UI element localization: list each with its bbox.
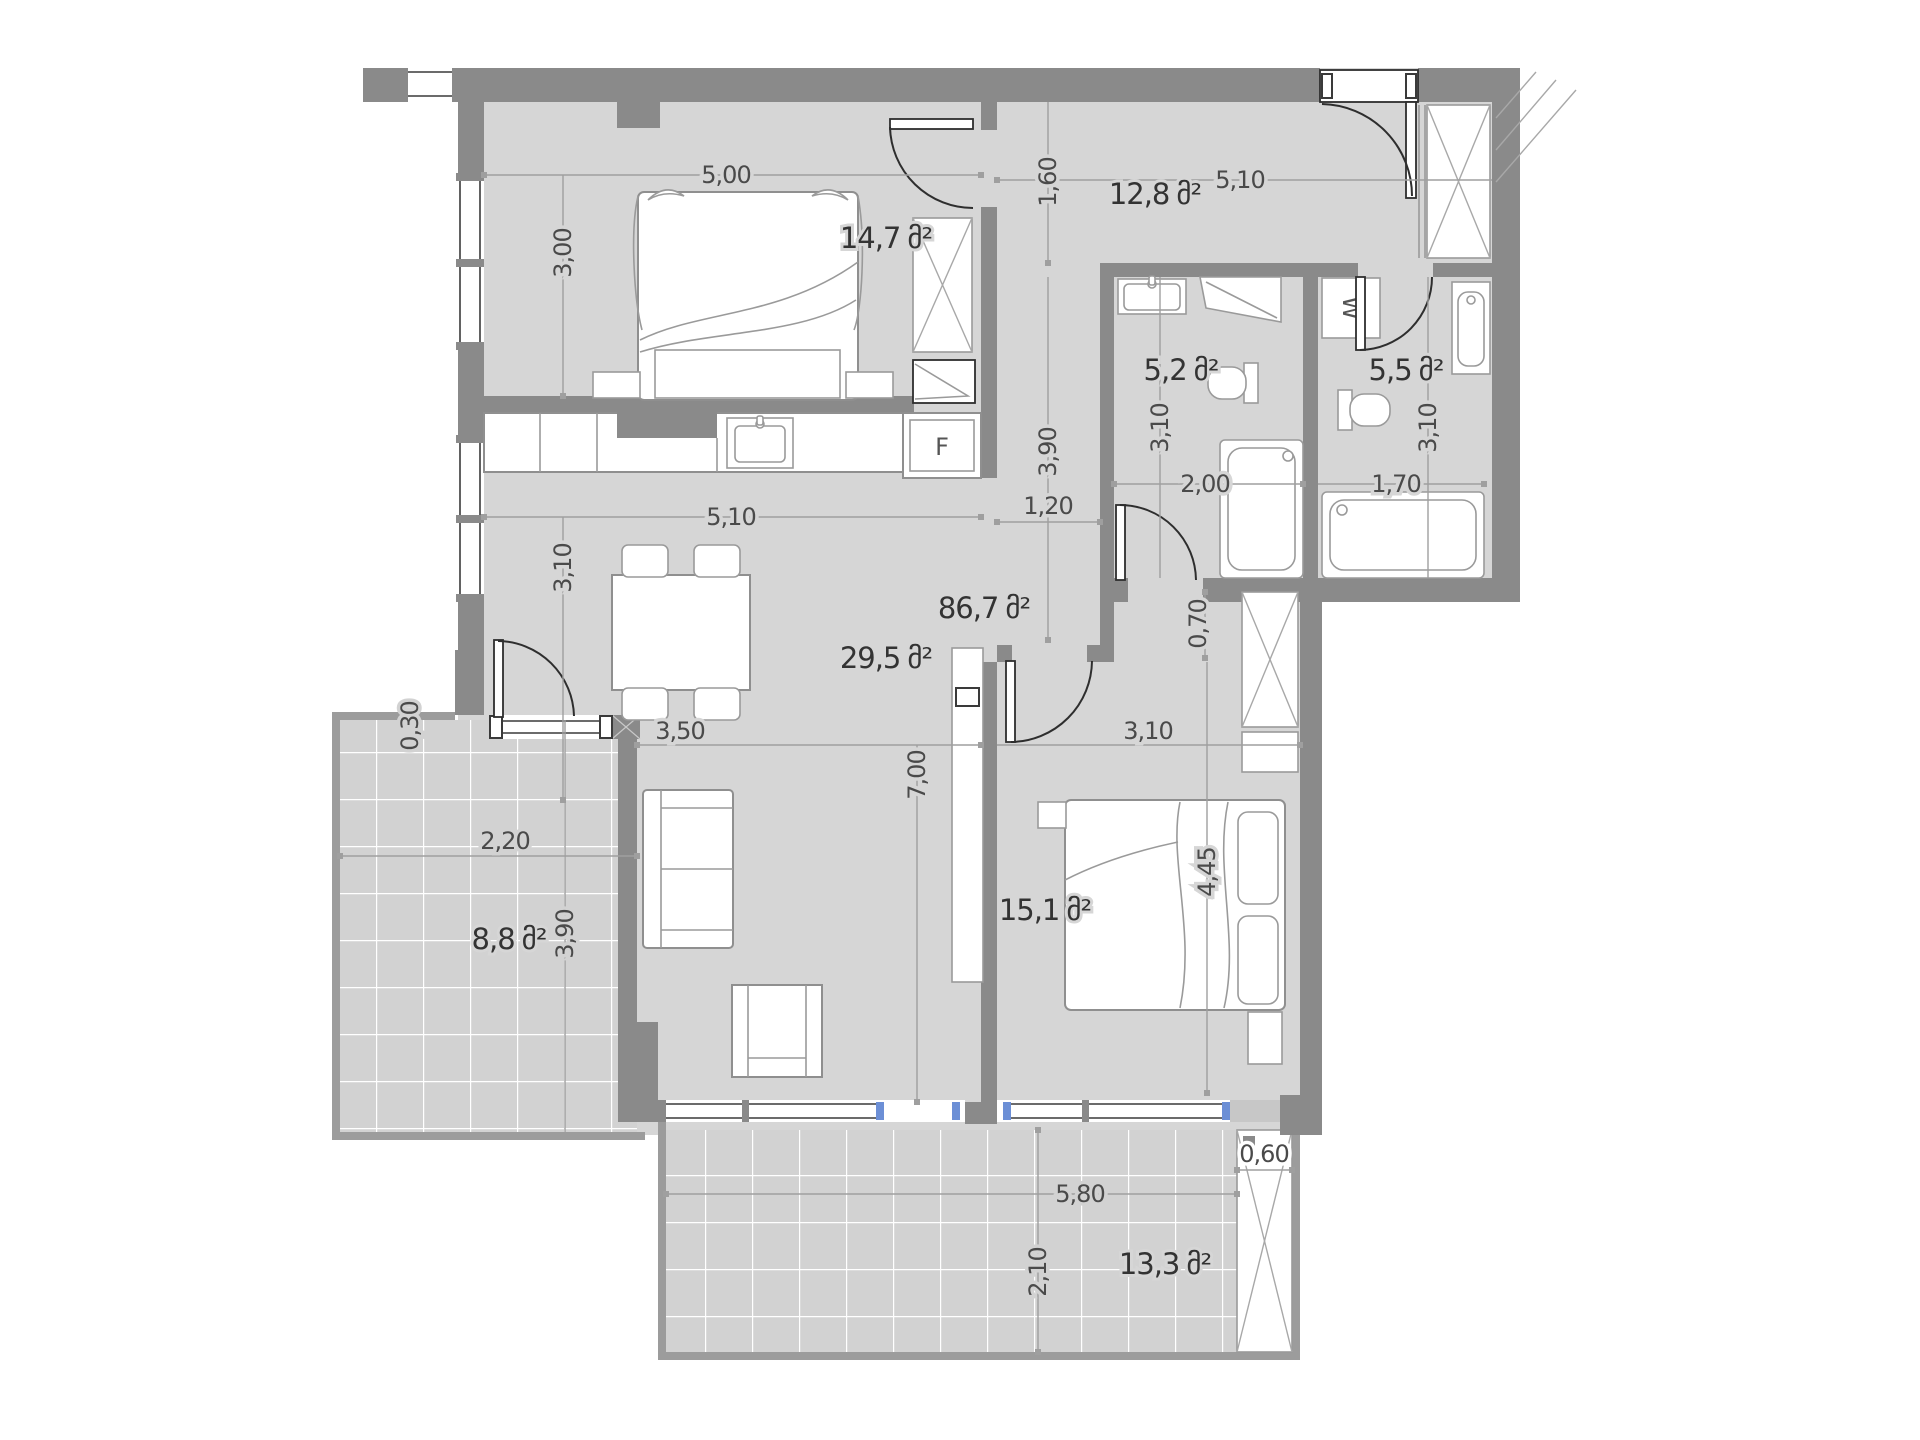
- svg-text:1,60: 1,60: [1034, 157, 1062, 206]
- tv-unit: [952, 648, 983, 982]
- balcony-bottom-tiles: [666, 1130, 1237, 1352]
- svg-text:3,10: 3,10: [549, 543, 577, 592]
- chair: [622, 688, 668, 720]
- bed-bedroom2: [1065, 800, 1285, 1010]
- svg-text:0,60: 0,60: [1239, 1140, 1288, 1168]
- window-living-left: [456, 435, 484, 602]
- window-band-bedroom2-south: [997, 1100, 1280, 1122]
- area-label-balcony-left: 8,8მ²: [472, 922, 547, 956]
- sink-bathroom1: [1118, 276, 1186, 314]
- svg-text:5,80: 5,80: [1055, 1180, 1104, 1208]
- svg-text:3,10: 3,10: [1414, 403, 1442, 452]
- bathtub-bathroom1: [1220, 440, 1303, 578]
- area-label-bathroom2: 5,5მ²: [1369, 353, 1444, 387]
- nightstand-bedroom2-left: [1038, 802, 1066, 828]
- svg-text:2,20: 2,20: [480, 827, 529, 855]
- toilet-bathroom2: [1338, 390, 1390, 430]
- svg-text:1,70: 1,70: [1371, 470, 1420, 498]
- nightstand-right: [846, 372, 893, 398]
- area-label-total: 86,7მ²: [938, 591, 1030, 625]
- balcony-bottom: [658, 1122, 1300, 1360]
- svg-text:3,50: 3,50: [655, 717, 704, 745]
- window-top-left-gap: [408, 64, 452, 104]
- area-label-bedroom1: 14,7მ²: [840, 221, 932, 255]
- sink-bathroom2: [1452, 282, 1490, 374]
- svg-text:5,10: 5,10: [706, 503, 755, 531]
- washer: W: [1322, 278, 1380, 338]
- svg-text:5,00: 5,00: [701, 161, 750, 189]
- wardrobe-bedroom2: [1242, 592, 1298, 727]
- nightstand-bedroom2-top: [1242, 732, 1298, 772]
- nightstand-left: [593, 372, 640, 398]
- balcony-door-sidelight: [490, 715, 612, 739]
- svg-text:2,00: 2,00: [1180, 470, 1229, 498]
- bed-bedroom1: [634, 190, 863, 400]
- svg-text:2,10: 2,10: [1024, 1247, 1052, 1296]
- svg-text:1,20: 1,20: [1023, 492, 1072, 520]
- svg-text:3,10: 3,10: [1123, 717, 1172, 745]
- fridge-label: F: [935, 433, 949, 461]
- chair: [622, 545, 668, 577]
- cabinet-bedroom1: [913, 360, 975, 403]
- chair: [694, 688, 740, 720]
- chair: [694, 545, 740, 577]
- svg-text:3,90: 3,90: [551, 909, 579, 958]
- svg-text:4,45: 4,45: [1193, 847, 1221, 896]
- fridge: F: [903, 413, 981, 478]
- dim-balcony-left-edge: 0,30: [396, 701, 424, 750]
- area-label-bedroom2: 15,1მ²: [999, 893, 1091, 927]
- bench-bedroom2: [1248, 1012, 1282, 1064]
- window-bedroom1-left: [456, 173, 484, 350]
- bathtub-bathroom2: [1322, 492, 1484, 578]
- svg-text:5,10: 5,10: [1215, 166, 1264, 194]
- svg-text:7,00: 7,00: [903, 750, 931, 799]
- hall-closet: [1419, 105, 1490, 258]
- sofa: [643, 790, 733, 948]
- svg-text:3,00: 3,00: [549, 228, 577, 277]
- area-label-bathroom1: 5,2მ²: [1144, 353, 1219, 387]
- svg-text:0,70: 0,70: [1184, 599, 1212, 648]
- kitchen-sink: [727, 416, 793, 468]
- svg-text:0,30: 0,30: [396, 701, 424, 750]
- armchair: [732, 985, 822, 1077]
- svg-text:3,90: 3,90: [1034, 427, 1062, 476]
- area-label-hall: 12,8მ²: [1109, 177, 1201, 211]
- area-label-balcony-bottom: 13,3მ²: [1119, 1247, 1211, 1281]
- svg-text:3,10: 3,10: [1146, 403, 1174, 452]
- floor-plan-svg: F: [0, 0, 1920, 1440]
- area-label-living: 29,5მ²: [840, 641, 932, 675]
